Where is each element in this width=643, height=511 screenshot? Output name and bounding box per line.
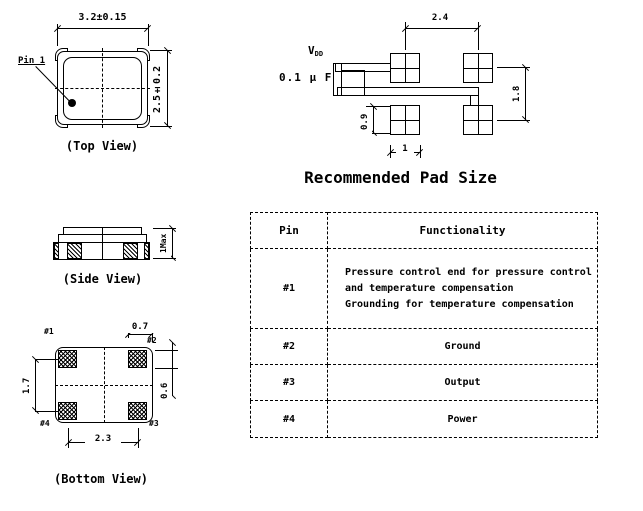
bottom-pad-1 xyxy=(58,350,77,368)
table-row: #4 Power xyxy=(251,401,598,438)
side-pad xyxy=(144,243,149,259)
bottom-pad-4-label: #4 xyxy=(40,419,50,428)
land-pad-1 xyxy=(390,53,420,83)
bottom-pitch-horizontal-dimension: 2.3 xyxy=(85,434,121,445)
function-cell: Output xyxy=(328,365,598,401)
bottom-pad-3 xyxy=(128,402,147,420)
extension-line xyxy=(138,428,139,448)
bottom-pad-3-label: #3 xyxy=(149,419,159,428)
table-row: #3 Output xyxy=(251,365,598,401)
extension-line xyxy=(68,428,69,448)
centerline-horizontal xyxy=(55,88,150,89)
pad-offset-dimension: 0.9 xyxy=(359,108,372,135)
function-line: and temperature compensation xyxy=(345,281,597,297)
pin1-label: Pin 1 xyxy=(18,56,45,66)
vdd-label: VDD xyxy=(308,44,323,58)
table-header-pin: Pin xyxy=(251,213,328,249)
land-pad-2 xyxy=(463,53,493,83)
dimension-line xyxy=(167,50,168,126)
bottom-pad-width-dimension: 0.7 xyxy=(124,322,156,333)
dimension-line xyxy=(172,228,173,258)
extension-line xyxy=(155,350,178,351)
pin-cell: #1 xyxy=(251,249,328,329)
bottom-pad-1-label: #1 xyxy=(44,327,54,336)
centerline-vertical xyxy=(102,227,103,260)
capacitor-value-label: 0.1 µ F xyxy=(279,71,332,84)
bottom-pitch-vertical-dimension: 1.7 xyxy=(21,372,34,399)
side-view-caption: (Side View) xyxy=(50,272,155,286)
table-header-row: Pin Functionality xyxy=(251,213,598,249)
land-pad-4 xyxy=(390,105,420,135)
side-pad xyxy=(54,243,59,259)
pin-cell: #4 xyxy=(251,401,328,438)
function-cell: Pressure control end for pressure contro… xyxy=(328,249,598,329)
bottom-pad-2 xyxy=(128,350,147,368)
table-row: #1 Pressure control end for pressure con… xyxy=(251,249,598,329)
dimension-line xyxy=(373,106,374,133)
table-row: #2 Ground xyxy=(251,329,598,365)
pad-size-caption: Recommended Pad Size xyxy=(283,168,518,187)
dimension-line xyxy=(525,67,526,120)
dimension-line xyxy=(128,334,152,335)
side-pad xyxy=(123,243,138,259)
bottom-view-caption: (Bottom View) xyxy=(46,472,156,486)
bypass-capacitor-outline xyxy=(341,70,365,96)
centerline-horizontal xyxy=(55,385,153,386)
pin-function-table: Pin Functionality #1 Pressure control en… xyxy=(250,212,598,438)
top-view-height-dimension: 2.5±0.2 xyxy=(152,60,165,118)
function-cell: Ground xyxy=(328,329,598,365)
pad-pitch-horizontal-dimension: 2.4 xyxy=(420,13,460,24)
dimension-line xyxy=(405,28,478,29)
bottom-pad-4 xyxy=(58,402,77,420)
function-line: Grounding for temperature compensation xyxy=(345,297,597,313)
function-line: Pressure control end for pressure contro… xyxy=(345,265,597,281)
land-pad-3 xyxy=(463,105,493,135)
function-cell: Power xyxy=(328,401,598,438)
pin-cell: #3 xyxy=(251,365,328,401)
pad-width-dimension: 1 xyxy=(396,144,414,155)
pin-cell: #2 xyxy=(251,329,328,365)
side-pad xyxy=(67,243,82,259)
side-view-height-dimension: 1Max xyxy=(158,230,171,257)
top-view-width-dimension: 3.2±0.15 xyxy=(57,12,148,23)
vdd-subscript: DD xyxy=(315,50,323,58)
dimension-line xyxy=(172,342,173,396)
pad-pitch-vertical-dimension: 1.8 xyxy=(511,80,524,107)
top-view-caption: (Top View) xyxy=(52,139,152,153)
dimension-line xyxy=(35,359,36,411)
extension-line xyxy=(155,368,178,369)
dimension-line xyxy=(57,28,148,29)
bottom-pad-height-dimension: 0.6 xyxy=(159,377,172,404)
table-header-functionality: Functionality xyxy=(328,213,598,249)
datasheet-page: 3.2±0.15 Pin 1 2.5±0.2 (Top View) 1Max (… xyxy=(0,0,643,511)
vdd-text: V xyxy=(308,44,315,57)
extension-line xyxy=(35,359,58,360)
extension-line xyxy=(366,106,390,107)
